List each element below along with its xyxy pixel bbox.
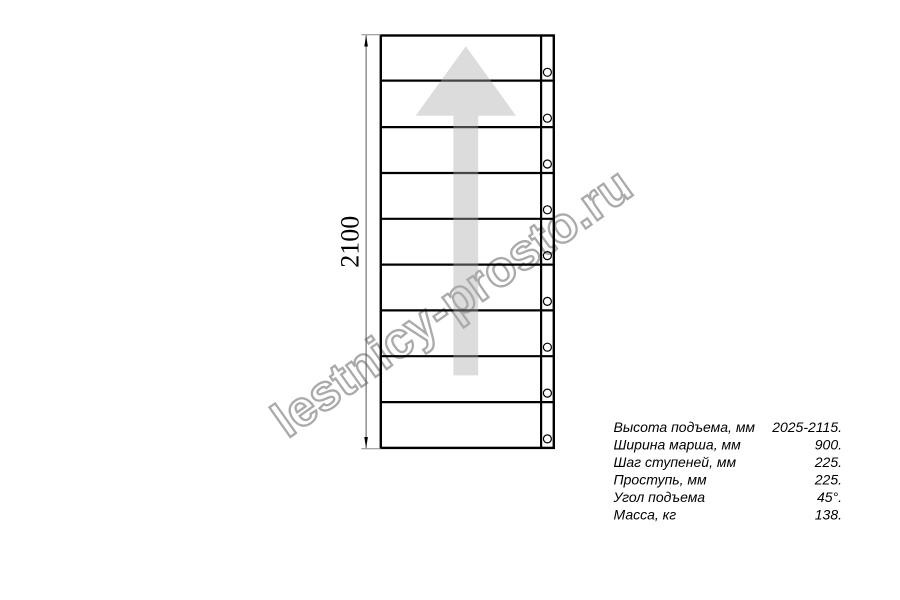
svg-text:Проступь, мм: Проступь, мм <box>614 472 708 488</box>
svg-text:225.: 225. <box>814 454 842 470</box>
svg-text:Высота подъема, мм: Высота подъема, мм <box>614 419 756 435</box>
svg-text:Ширина марша, мм: Ширина марша, мм <box>614 437 742 453</box>
svg-text:Угол подъема: Угол подъема <box>613 489 706 505</box>
svg-text:2100: 2100 <box>336 216 365 268</box>
svg-text:225.: 225. <box>814 472 842 488</box>
svg-text:lestnicy-prosto.ru: lestnicy-prosto.ru <box>262 157 642 448</box>
svg-text:Шаг ступеней, мм: Шаг ступеней, мм <box>614 454 737 470</box>
svg-text:45°.: 45°. <box>817 489 842 505</box>
svg-text:Масса, кг: Масса, кг <box>614 507 677 523</box>
svg-text:2025-2115.: 2025-2115. <box>771 419 842 435</box>
svg-text:900.: 900. <box>815 437 842 453</box>
svg-text:138.: 138. <box>815 507 842 523</box>
